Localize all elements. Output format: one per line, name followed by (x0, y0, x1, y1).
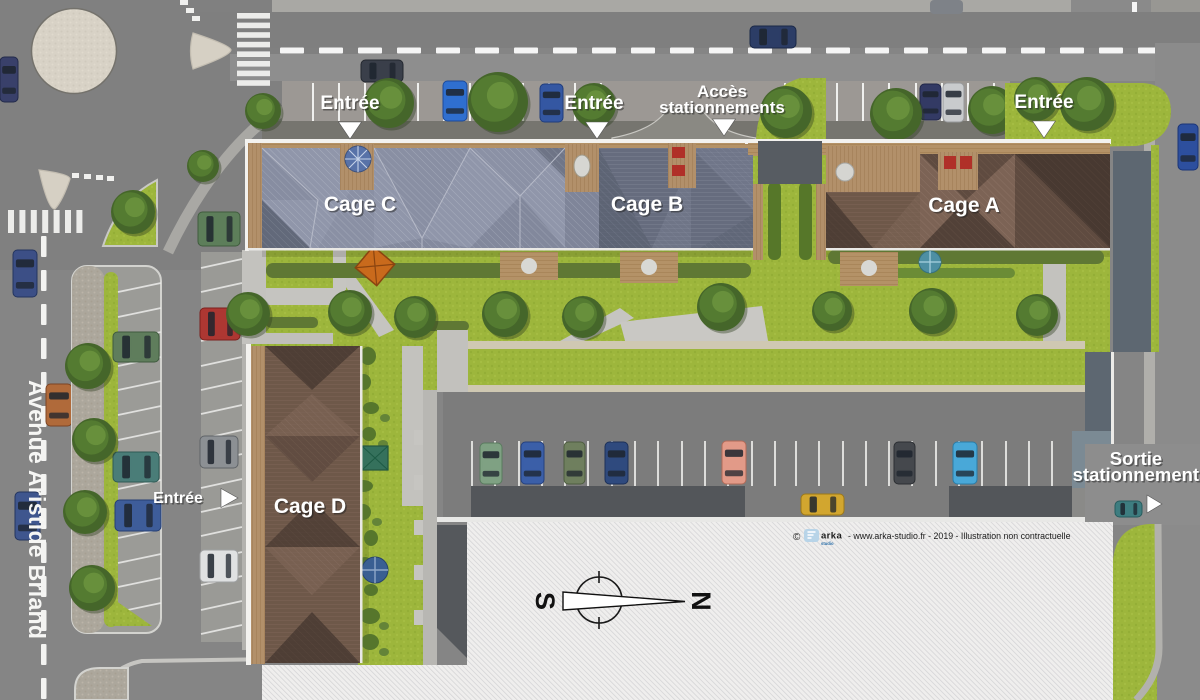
svg-text:Cage A: Cage A (928, 194, 1000, 217)
svg-text:Entrée: Entrée (564, 93, 623, 114)
svg-text:- www.arka-studio.fr - 2019 -: - www.arka-studio.fr - 2019 - Illustrati… (848, 531, 1071, 541)
svg-text:Cage B: Cage B (611, 193, 683, 216)
svg-text:studio: studio (821, 541, 834, 546)
svg-text:N: N (686, 591, 716, 611)
svg-text:arka: arka (821, 531, 842, 542)
svg-text:©: © (793, 532, 801, 543)
svg-text:Entrée: Entrée (153, 490, 203, 507)
svg-text:stationnements: stationnements (659, 98, 785, 117)
svg-text:S: S (530, 592, 560, 610)
svg-text:Cage D: Cage D (274, 495, 346, 518)
svg-text:Cage C: Cage C (324, 193, 396, 216)
svg-text:Avenue Aristide Briand: Avenue Aristide Briand (24, 380, 50, 639)
svg-text:Entrée: Entrée (320, 93, 379, 114)
svg-text:Entrée: Entrée (1014, 92, 1073, 113)
svg-text:stationnements: stationnements (1073, 464, 1200, 485)
